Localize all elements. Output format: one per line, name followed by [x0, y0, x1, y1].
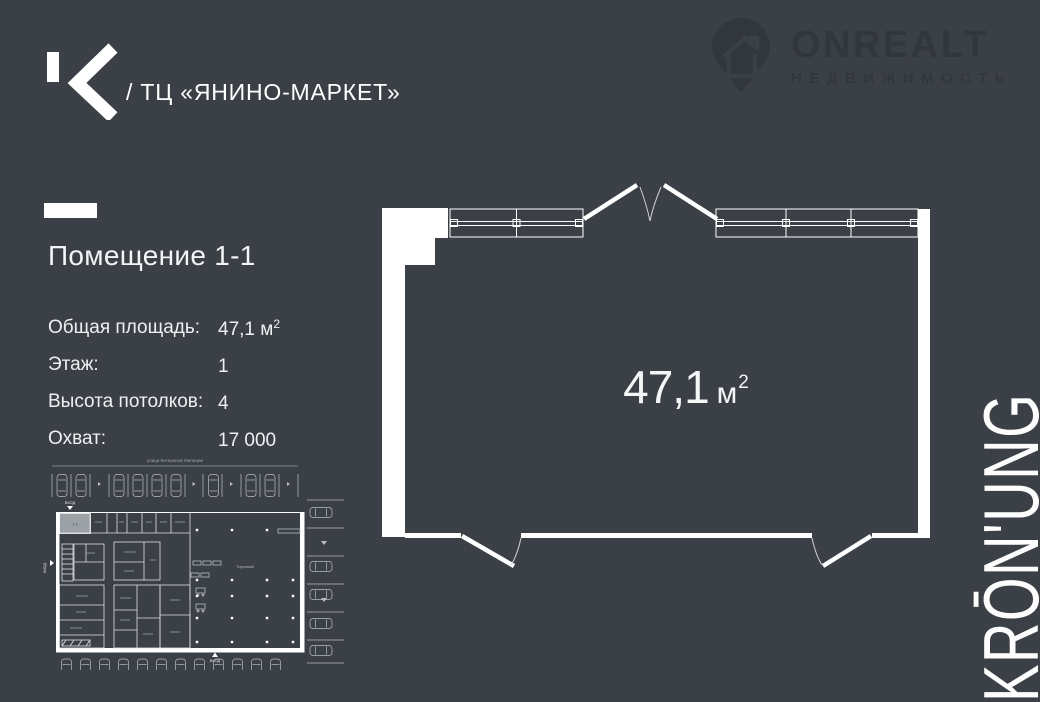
street-label: улица Ветеранов Милиции [147, 458, 204, 463]
storefront-left [450, 209, 583, 237]
plan-area-sup: 2 [738, 372, 749, 393]
building-title: / ТЦ «ЯНИНО-МАРКЕТ» [126, 79, 401, 106]
back-door-right [812, 536, 871, 566]
plan-area-unit: м [717, 377, 738, 410]
hall-fixtures [191, 529, 300, 612]
detail-row-area: Общая площадь: 47,1 м2 [48, 318, 348, 341]
hall-columns [196, 529, 294, 643]
back-door-left [462, 536, 521, 566]
micro-label-marks [70, 522, 185, 634]
detail-row-ceiling: Высота потолков: 4 [48, 392, 348, 415]
watermark-subtitle: НЕДВИЖИМОСТЬ [791, 70, 1013, 87]
entrance-label-top: ВХОД [65, 501, 76, 505]
listing-flyer: { "colors": { "background": "#3b4046", "… [0, 0, 1040, 670]
detail-row-floor: Этаж: 1 [48, 355, 348, 378]
detail-value: 17 000 [218, 429, 276, 452]
detail-label: Этаж: [48, 355, 218, 378]
detail-label: Высота потолков: [48, 392, 218, 415]
map-pin-house-icon [712, 18, 770, 94]
detail-value: 4 [218, 392, 229, 415]
detail-label: Охват: [48, 429, 218, 452]
detail-value: 47,1 м2 [218, 318, 280, 341]
hall-label: Торговый [236, 564, 253, 569]
parked-cars-right [310, 508, 332, 656]
site-plan: улица Ветеранов Милиции ВХОД 1-1 [30, 450, 350, 670]
empty-stall-marks [98, 482, 290, 486]
storefront-right [716, 209, 918, 237]
page-title: Помещение 1-1 [48, 240, 256, 272]
entrance-label-left: ВХОД [43, 563, 47, 573]
highlighted-unit-label: 1-1 [72, 522, 79, 527]
brand-vertical-text: KRŌN'UNG [966, 393, 1040, 702]
plan-area-number: 47,1 [623, 361, 709, 413]
entrance-arrow-left-icon [50, 560, 54, 566]
detail-row-reach: Охват: 17 000 [48, 429, 348, 452]
entrance-arrow-bottom-icon [212, 653, 218, 658]
detail-label: Общая площадь: [48, 318, 218, 341]
accent-dash [44, 203, 97, 218]
watermark-brand: ONREALT [791, 26, 1013, 64]
entrance-door [584, 185, 717, 221]
parking-lane-right [307, 500, 344, 663]
plan-area-label: 47,1м2 [596, 360, 776, 414]
entrance-arrow-top-icon [67, 506, 73, 510]
detail-value: 1 [218, 355, 229, 378]
details-list: Общая площадь: 47,1 м2 Этаж: 1 Высота по… [48, 318, 348, 466]
watermark: ONREALT НЕДВИЖИМОСТЬ [791, 26, 1013, 87]
parking-row-bottom [62, 659, 281, 670]
parking-row-top [52, 474, 298, 497]
